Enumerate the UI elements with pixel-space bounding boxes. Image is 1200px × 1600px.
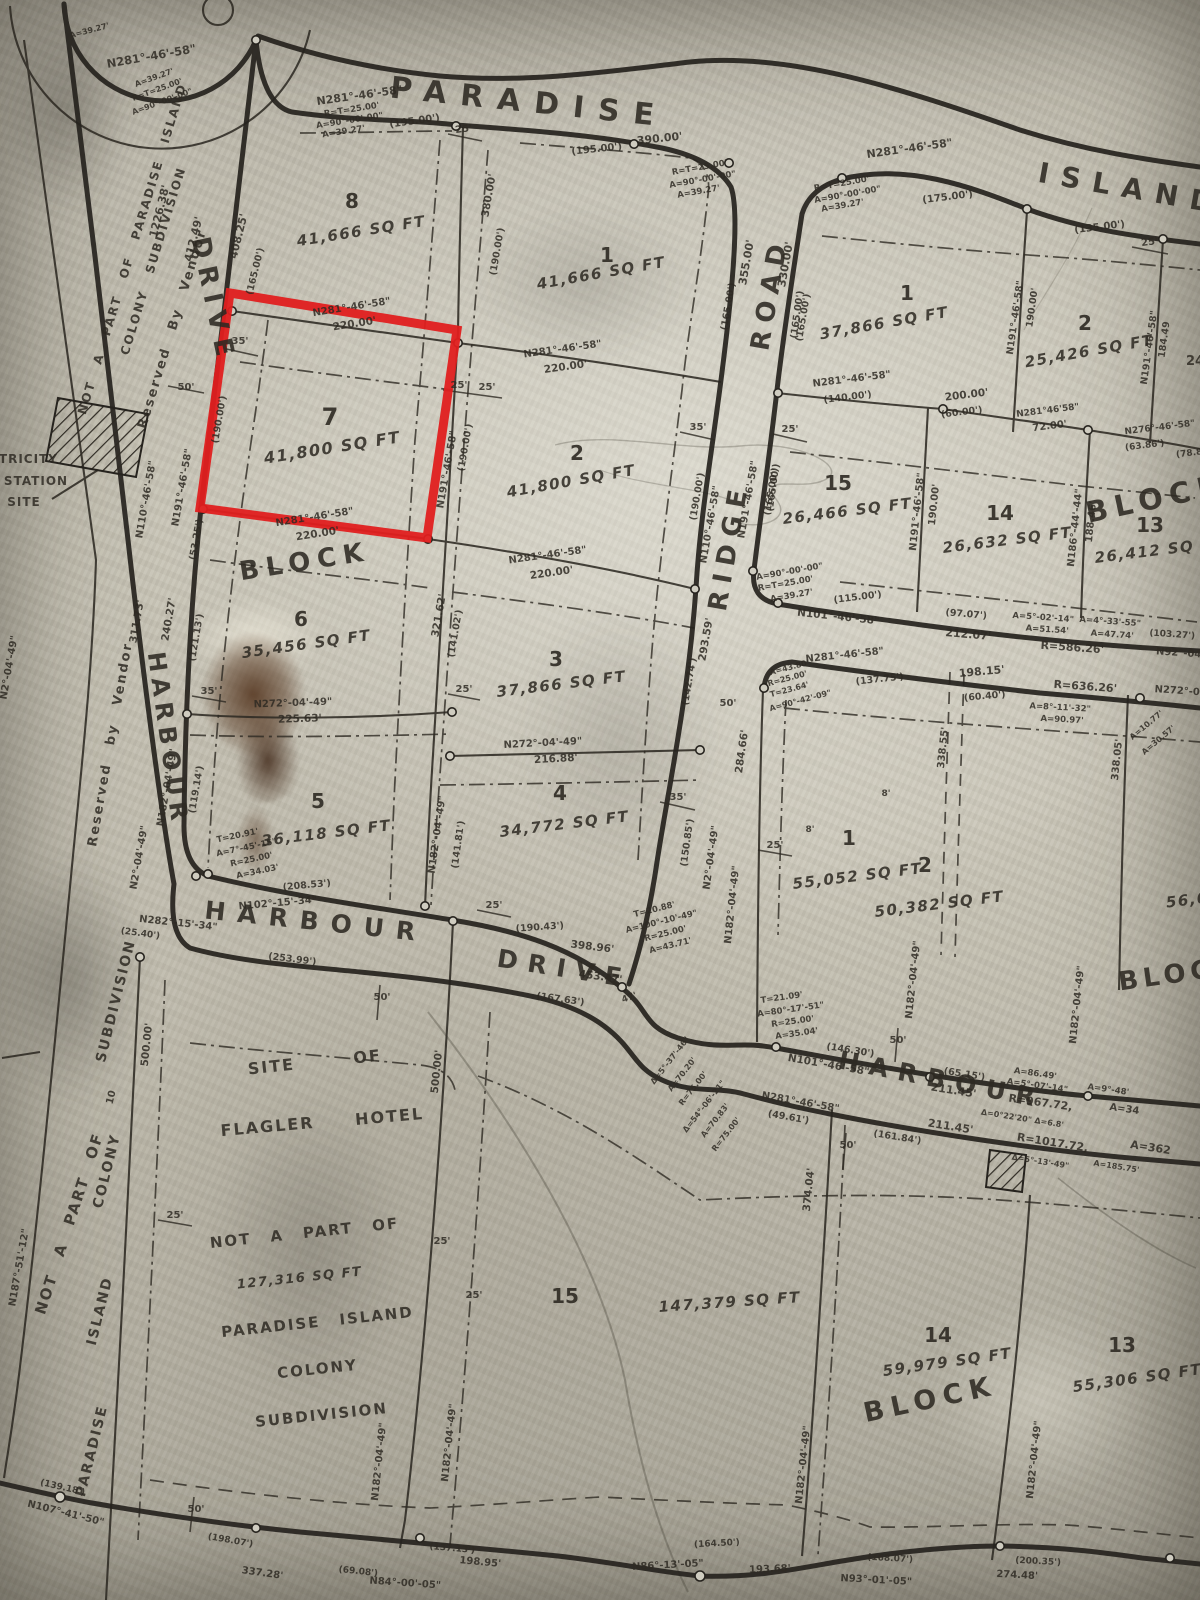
map-label: N92°-04' [1156,646,1200,660]
map-label: A=34 [1109,1102,1140,1117]
map-label: (190.43') [515,920,564,934]
map-label: N182°-04'-49" [440,1403,459,1482]
map-label: A=8°-11'-32" [1029,701,1091,714]
lot-area: 36,118 SQ FT [261,816,393,850]
map-label: (141.02') [446,609,465,658]
map-label: N182°-04'-49" [794,1425,813,1504]
lot-number: 2 [918,853,932,877]
setback-line [452,592,694,628]
map-label: 240.27' [159,597,178,642]
map-label: 35' [201,686,218,697]
map-label: 220.00' [529,564,574,582]
map-label: (103.27') [1149,628,1195,641]
map-label: N182°-04'-49" [1025,1420,1044,1499]
map-label: 408.25' [227,212,251,260]
map-label: 8' [805,825,814,835]
map-label: (164.50') [694,1538,740,1550]
lot-area: 41,666 SQ FT [294,212,427,250]
street-label: BLOCK [1116,951,1200,998]
lot-number: 2 [570,441,584,465]
lot-number: 15 [551,1284,579,1308]
lot-area: 37,866 SQ FT [496,667,628,701]
map-label: 72.00' [1032,419,1068,434]
map-label: N182°-04'-49" [904,940,923,1019]
paper-crease [1058,1178,1196,1268]
lot-area: 26,412 SQ FT [1094,533,1200,567]
map-label: N182°-04'-49" [1068,965,1087,1044]
map-label: (53.25') [188,518,206,561]
map-label: N182°-04'-49" [723,865,742,944]
map-label: 184.49 [1157,321,1173,359]
map-label: N272°-04' [1154,684,1200,699]
lot-number: 13 [1136,513,1164,537]
map-label: N2°-04'-49" [0,635,21,701]
map-label: N281°46'58" [1016,402,1080,420]
setback-line [440,780,700,785]
lot-area: 41,800 SQ FT [504,461,637,502]
note-label: NOT A PART OF [209,1214,400,1252]
lot-number: 1 [900,281,914,305]
map-label: 10 [105,1089,119,1105]
map-label: N86°-13'-05" [632,1558,704,1573]
culdesac-island [203,0,233,25]
lot-line [458,127,463,332]
map-label: (195.00') [571,141,623,157]
map-label: N276°-46'-58" [1124,419,1195,438]
map-label: 35' [232,336,249,347]
map-label: 25' [486,900,503,911]
lot-number: 6 [294,607,308,631]
map-label: (195.00') [389,113,441,131]
note-label: OF [352,1046,382,1068]
map-label: 8' [881,789,890,799]
lot-number: 7 [322,403,339,431]
map-label: (97.07') [945,607,987,622]
plat-map-svg: PARADISEISLANDDRIVEHARBOURRIDGEROADHARBO… [0,0,1200,1600]
map-label: R=586.26' [1040,639,1104,656]
map-label: A=39.27' [69,21,111,40]
map-label: A=51.54' [1025,624,1069,637]
map-label: 50' [890,1035,907,1046]
note-label: SUBDIVISION [254,1399,388,1431]
lot-number: 4 [553,781,567,805]
note-label: HOTEL [354,1104,424,1129]
map-label: (140.00') [823,389,872,406]
map-label: (168.07') [867,1553,913,1565]
map-label: (175.00') [922,189,974,206]
map-label: (49.61') [767,1109,810,1127]
map-label: 225.63' [278,712,322,726]
note-label: PARADISE ISLAND [220,1303,414,1341]
map-label: N101°-46'-58" [797,607,880,628]
lot-number: 2 [1078,311,1092,335]
map-label: N191°-46'-58" [170,448,194,527]
map-label: 198.95' [459,1555,501,1570]
lot-area: 56,0 [1165,888,1200,911]
map-label: N281°-46'-58" [866,136,953,161]
map-label: 390.00' [636,130,683,148]
map-label: (115.00') [833,589,882,606]
road-drive-inner-harbour-upper-edge [184,40,1200,1106]
map-label: (165.00') [244,247,266,296]
dimension-tie-line [2,1052,40,1058]
map-label: SITE [7,495,41,509]
map-label: 374.04' [801,1167,818,1212]
map-label: 190.00' [927,483,942,526]
map-label: A=362 [1129,1138,1171,1157]
map-label: STATION [4,474,68,488]
setback-line [450,1012,490,1545]
map-label: (60.40') [964,689,1006,704]
note-label: Reserved by Vendor [85,641,136,848]
note-label: SUBDIVISION [93,938,139,1064]
dimension-tick [680,432,715,440]
map-label: 25' [454,123,472,136]
note-label: SITE [247,1055,296,1079]
street-label: BLOCK [861,1370,1000,1428]
map-label: 500.00' [139,1022,156,1067]
map-label: 193.68' [749,1563,791,1575]
dimension-tick [477,910,511,917]
lot-area: 35,456 SQ FT [240,626,372,662]
map-label: 355.00' [736,239,757,286]
lot-area: 26,466 SQ FT [782,494,914,528]
utility-easement-line [955,674,964,957]
map-label: 25' [167,1210,184,1221]
lot-number: 14 [924,1323,952,1347]
map-label: 338.05' [1110,738,1125,781]
map-label: (208.53') [282,878,331,893]
map-label: N93°-01'-05" [840,1573,912,1588]
lot-number: 5 [311,789,325,813]
map-label: N182°-04'-49" [370,1422,389,1501]
map-label: (165.00') [719,282,738,331]
map-label: (63.86') [1125,439,1165,454]
map-label: (150.85') [679,818,697,867]
note-label: PARADISE [73,1404,111,1499]
lot-number: 1 [842,826,856,850]
map-label: A=5°-02'-14" [1012,611,1074,625]
map-label: 321.62' [429,593,448,638]
map-label: 25' [451,380,468,391]
map-label: (137.13') [429,1542,475,1556]
lot-line [757,690,763,1042]
map-label: 293.59' [696,617,715,662]
setback-line [190,734,450,737]
map-label: N272°-04'-49" [253,697,332,711]
lot-area: 127,316 SQ FT [236,1264,363,1292]
note-label: COLONY [276,1356,358,1382]
lot-area: 26,632 SQ FT [942,523,1074,557]
map-label: 380.00' [479,173,498,218]
lot-number: 13 [1108,1333,1136,1357]
plat-map-photo: PARADISEISLANDDRIVEHARBOURRIDGEROADHARBO… [0,0,1200,1600]
map-label: ELECTRICITY [0,452,58,466]
lot-area: 25,426 SQ FT [1023,331,1155,371]
map-label: A=185.75' [1093,1158,1140,1174]
shore-offset-line [150,1480,1200,1538]
map-label: N191°-46'-58" [1005,280,1026,356]
map-label: A=47.74' [1090,629,1134,642]
map-label: N2°-04'-49" [702,825,722,891]
lot-area: 55,052 SQ FT [792,859,924,893]
note-label: ISLAND [84,1275,117,1347]
map-label: 220.00' [543,358,588,376]
map-label: (200.35') [1015,1556,1061,1568]
lot-area: 147,379 SQ FT [658,1288,801,1316]
map-label: 25' [782,424,799,435]
map-label: 25' [456,684,473,695]
map-label: N281°-46'-58" [812,369,891,390]
map-label: N2°-04'-49" [129,825,151,891]
map-label: 220.00' [295,525,340,544]
map-label: 50' [720,698,737,709]
map-label: 35' [690,422,707,433]
map-label: (190.00') [456,423,475,472]
map-label: 198.15' [958,663,1005,680]
map-label: 216.88' [534,752,578,766]
map-label: 311.73' [127,599,146,644]
map-label: 50' [188,1504,205,1515]
map-label: 284.66' [733,729,751,774]
map-label: Δ=0°22'20" Δ=6.8' [980,1108,1064,1130]
dimension-tick [773,434,807,442]
lot-line [428,539,695,589]
lot-number: 14 [986,501,1014,525]
map-label: 25' [1140,236,1158,249]
map-label: 274.48' [996,1569,1038,1582]
map-label: (78.86') [1176,446,1200,461]
map-label: Δ=5°-37'-46" [649,1035,692,1086]
map-label: (142.74') [680,657,699,706]
lot-area: 34,772 SQ FT [499,807,631,841]
map-label: 50' [840,1140,857,1151]
lot-number: 3 [549,647,563,671]
lot-area: 50,382 SQ FT [874,887,1006,921]
map-label: 50' [374,992,391,1003]
road-drive-west-harbour-lower-edge [64,4,1200,1164]
map-label: 50' [178,382,195,393]
setback-line [778,700,786,935]
map-label: 35' [670,792,687,803]
map-label: 25' [767,840,784,851]
lot-area: 41,800 SQ FT [262,427,402,467]
map-label: N272°-04'-49" [503,736,582,751]
note-label: FLAGLER [220,1113,315,1140]
map-label: 25' [434,1236,451,1247]
map-label: (141.81') [450,820,468,869]
map-label: 190.00' [1024,287,1040,328]
lot-line [992,1195,1030,1560]
map-label: 338.55' [936,726,951,769]
map-label: 337.28' [241,1565,284,1582]
map-label: 398.96' [570,938,615,955]
dimension-tick [448,134,482,141]
lot-area: 37,866 SQ FT [818,303,950,343]
setback-line [818,1125,845,1555]
electricity-station-site-hatch [46,398,148,477]
setback-line [190,1043,455,1090]
map-label: 200.00' [944,386,989,403]
map-label: N281°-46'-58" [106,41,198,70]
map-label: 25' [479,382,496,393]
map-label: N84°-00'-05" [369,1576,441,1592]
map-label: (198.07') [207,1532,254,1550]
map-label: 212.07' [945,626,992,643]
lot-area: 55,306 SQ FT [1071,1360,1200,1396]
lot-number: 15 [824,471,852,495]
map-label: N281°-46'-58" [805,646,884,665]
lot-number: 8 [345,189,359,213]
map-label: 24 [1186,354,1200,369]
labels-layer: PARADISEISLANDDRIVEHARBOURRIDGEROADHARBO… [0,21,1200,1592]
map-label: A=4°-33'-55" [1079,615,1141,629]
map-label: 25' [466,1290,483,1301]
map-label: A=90.97' [1040,714,1084,726]
street-label: BLOCK [237,537,372,587]
map-label: (190.00') [488,227,507,276]
